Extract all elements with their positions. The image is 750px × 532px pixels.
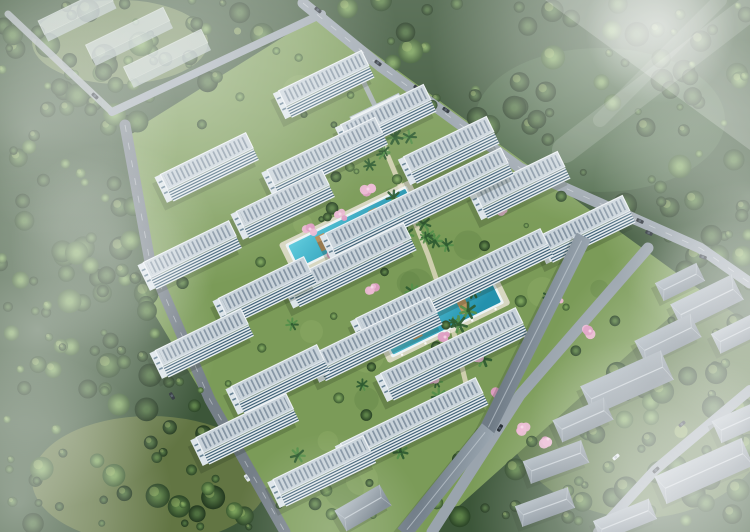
aerial-render <box>0 0 750 532</box>
fog-and-flare <box>0 0 750 532</box>
scene-svg <box>0 0 750 532</box>
